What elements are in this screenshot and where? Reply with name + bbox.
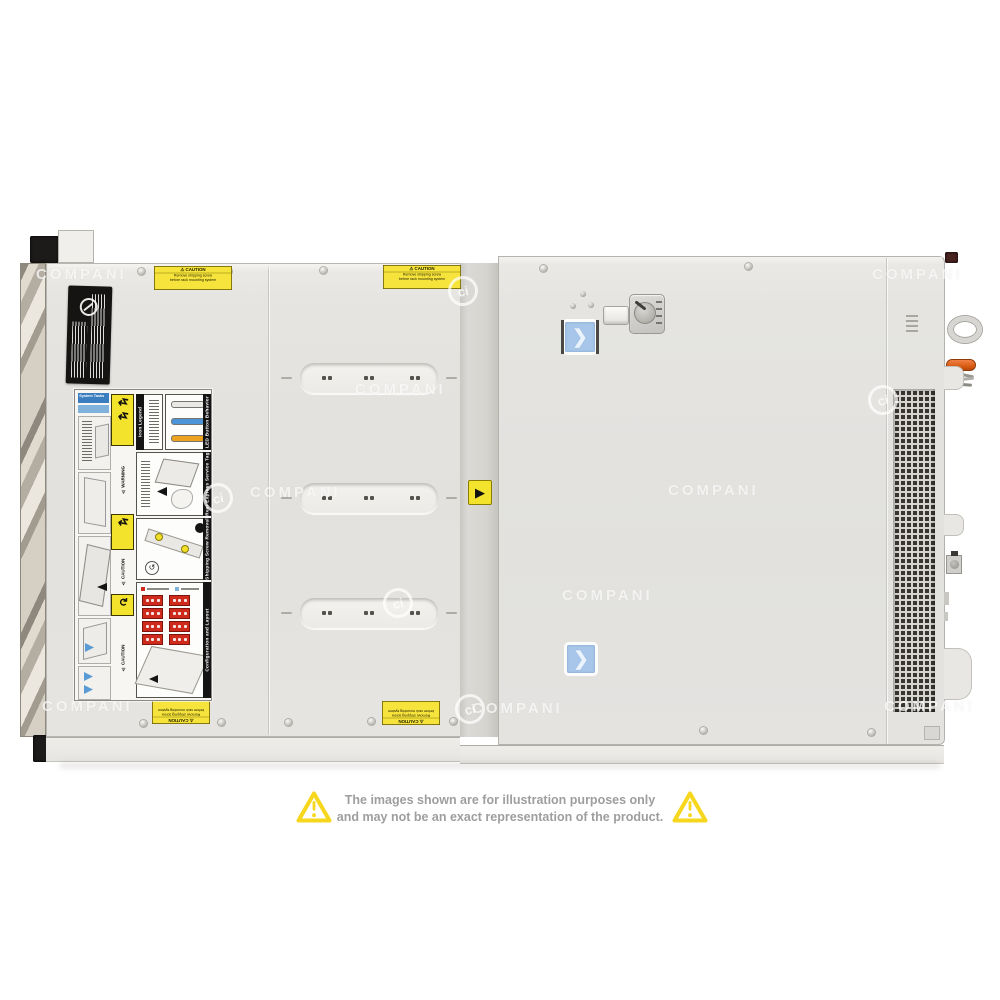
bottom-lip-rear bbox=[460, 745, 944, 764]
task-diagram bbox=[78, 666, 111, 700]
psu-handle-ring bbox=[948, 316, 982, 343]
etched-dash bbox=[446, 497, 457, 499]
warning-triangle-icon bbox=[672, 790, 708, 824]
drive-bay-cell bbox=[142, 634, 163, 645]
drive-dot bbox=[184, 638, 187, 641]
rivet bbox=[588, 302, 594, 308]
screw bbox=[540, 265, 547, 272]
drive-dot bbox=[173, 599, 176, 602]
config-layout-header: Configuration and Layout bbox=[203, 582, 211, 698]
slot-vent-dot bbox=[410, 496, 414, 500]
drive-dot bbox=[178, 638, 181, 641]
slot-vent-dot bbox=[416, 376, 420, 380]
regulatory-label bbox=[66, 285, 113, 384]
drive-dot bbox=[157, 638, 160, 641]
lift-warning-icon-box: ↯ ↯ bbox=[111, 394, 134, 446]
rear-tab bbox=[944, 612, 948, 621]
drive-dot bbox=[151, 612, 154, 615]
etched-dash bbox=[446, 377, 457, 379]
screw bbox=[138, 268, 145, 275]
etched-dash bbox=[446, 612, 457, 614]
cover-edge-bulge bbox=[944, 648, 972, 700]
slot-vent-dot bbox=[410, 611, 414, 615]
cover-keylock bbox=[629, 294, 665, 334]
bottom-lip-front bbox=[46, 737, 460, 762]
screw bbox=[745, 263, 752, 270]
slot-vent-dot bbox=[364, 496, 368, 500]
led-behavior-header: LED Button Behavior bbox=[203, 394, 211, 450]
screw bbox=[868, 729, 875, 736]
caution-line: before rack mounting system bbox=[383, 709, 439, 713]
task-diagram bbox=[78, 536, 111, 616]
drive-dot bbox=[151, 625, 154, 628]
led-bar bbox=[171, 401, 205, 408]
slot-vent-dot bbox=[416, 496, 420, 500]
slot-vent-dot bbox=[328, 611, 332, 615]
shipping-screw-header: Shipping Screw Removal bbox=[203, 518, 211, 580]
drive-dot bbox=[146, 638, 149, 641]
chevron-right-icon: ❯ bbox=[573, 648, 589, 671]
rack-ear-top-left bbox=[30, 236, 59, 263]
rear-tab bbox=[944, 592, 949, 605]
caution-line: before rack mounting system bbox=[153, 708, 209, 712]
drive-dot bbox=[146, 612, 149, 615]
drive-dot bbox=[146, 599, 149, 602]
config-layout-panel bbox=[136, 582, 211, 698]
slot-vent-dot bbox=[364, 611, 368, 615]
service-chip-system-tasks: System Tasks bbox=[78, 393, 109, 403]
cover-seam bbox=[268, 265, 269, 735]
rear-corner-piece bbox=[945, 252, 958, 263]
drive-dot bbox=[173, 638, 176, 641]
drive-dot bbox=[178, 625, 181, 628]
screw bbox=[450, 718, 457, 725]
drive-dot bbox=[184, 612, 187, 615]
etched-dash bbox=[281, 612, 292, 614]
server-front-edge-drive-latches bbox=[20, 263, 46, 737]
led-bar bbox=[171, 418, 205, 425]
drive-dot bbox=[157, 599, 160, 602]
task-diagram bbox=[78, 618, 111, 664]
rear-vent-perforation bbox=[893, 389, 935, 712]
drive-bay-cell bbox=[169, 608, 190, 619]
drive-dot bbox=[173, 612, 176, 615]
etched-dash bbox=[281, 497, 292, 499]
cover-release-slider bbox=[603, 306, 629, 325]
drive-dot bbox=[178, 612, 181, 615]
rivet bbox=[570, 303, 576, 309]
cover-top-highlight-rear bbox=[499, 257, 942, 265]
front-top-protrusion bbox=[58, 230, 94, 263]
slot-vent-dot bbox=[322, 611, 326, 615]
service-instruction-label: System Tasks bbox=[74, 389, 212, 701]
vent-panel-seam bbox=[886, 258, 887, 744]
regulatory-microtext bbox=[90, 294, 106, 378]
lock-unlock-icons bbox=[656, 301, 662, 325]
caution-text-panel: ⚠ CAUTION bbox=[111, 618, 134, 698]
drive-bay-cell bbox=[142, 621, 163, 632]
drive-dot bbox=[173, 625, 176, 628]
screw bbox=[140, 720, 147, 727]
drop-shadow bbox=[60, 763, 940, 768]
drive-bay-cell bbox=[142, 595, 163, 606]
cover-recess-slot bbox=[300, 598, 438, 629]
drive-dot bbox=[184, 599, 187, 602]
embossed-marks bbox=[906, 315, 918, 333]
rear-thumbscrew bbox=[946, 555, 962, 574]
drive-dot bbox=[184, 625, 187, 628]
caution-line: Remove shipping screw bbox=[383, 713, 439, 717]
slot-vent-dot bbox=[370, 611, 374, 615]
drive-bay-cell bbox=[169, 595, 190, 606]
drive-dot bbox=[178, 599, 181, 602]
task-diagram bbox=[78, 472, 111, 534]
slot-vent-dot bbox=[410, 376, 414, 380]
drive-bay-cell bbox=[169, 621, 190, 632]
drive-bay-cell bbox=[169, 634, 190, 645]
cycle-icon-box: ↻ bbox=[111, 594, 134, 616]
drive-dot bbox=[157, 612, 160, 615]
disclaimer-line-1: The images shown are for illustration pu… bbox=[320, 792, 680, 809]
service-chip-secondary bbox=[78, 405, 109, 413]
caution-text-panel: ⚠ CAUTION bbox=[111, 552, 134, 592]
slot-vent-dot bbox=[322, 496, 326, 500]
screw bbox=[285, 719, 292, 726]
product-photo-canvas: ⚠ CAUTION Remove shipping screw before r… bbox=[0, 0, 1000, 1000]
caution-label-top-left: ⚠ CAUTION Remove shipping screw before r… bbox=[154, 266, 232, 290]
caution-title: ⚠ CAUTION bbox=[153, 717, 209, 723]
cover-edge-notch bbox=[944, 514, 964, 536]
caution-line: before rack mounting system bbox=[155, 278, 231, 282]
slot-vent-dot bbox=[370, 496, 374, 500]
service-tag-header: Rear Express Service Tag bbox=[203, 452, 211, 516]
cover-latch-button-top: ❯ bbox=[565, 322, 595, 352]
drive-bay-cell bbox=[142, 608, 163, 619]
screw bbox=[320, 267, 327, 274]
rivet bbox=[580, 291, 586, 297]
chevron-right-icon: ❯ bbox=[572, 326, 588, 349]
cover-edge-notch bbox=[944, 366, 964, 390]
warning-triangle-glyph: ▶ bbox=[475, 485, 485, 501]
lift-warning-icon-box: ↯ bbox=[111, 514, 134, 550]
drive-dot bbox=[151, 599, 154, 602]
slot-vent-dot bbox=[328, 496, 332, 500]
caution-title: ⚠ CAUTION bbox=[383, 718, 439, 724]
regulatory-microtext bbox=[71, 322, 88, 378]
disclaimer-line-2: and may not be an exact representation o… bbox=[320, 809, 680, 826]
caution-line: before rack mounting system bbox=[384, 277, 460, 281]
cover-latch-button-bottom: ❯ bbox=[567, 645, 595, 673]
slot-vent-dot bbox=[364, 376, 368, 380]
warning-text-panel: ⚠ WARNING bbox=[111, 448, 134, 512]
task-diagram bbox=[78, 416, 111, 470]
service-tag-panel bbox=[136, 452, 211, 516]
caution-label-bottom-left: ⚠ CAUTION Remove shipping screw before r… bbox=[152, 700, 210, 724]
rear-foot bbox=[924, 726, 940, 740]
screw bbox=[218, 719, 225, 726]
screw bbox=[700, 727, 707, 734]
drive-bay-diagram-front bbox=[142, 595, 163, 647]
caution-line: Remove shipping screw bbox=[153, 712, 209, 716]
drive-bay-diagram-mid bbox=[169, 595, 190, 647]
led-bar bbox=[171, 435, 205, 442]
disclaimer-text: The images shown are for illustration pu… bbox=[320, 792, 680, 826]
cover-recess-slot bbox=[300, 483, 438, 514]
drive-dot bbox=[151, 638, 154, 641]
drive-dot bbox=[157, 625, 160, 628]
screw bbox=[368, 718, 375, 725]
shipping-screw-panel: ↺ bbox=[136, 518, 211, 580]
caution-label-top-right: ⚠ CAUTION Remove shipping screw before r… bbox=[383, 265, 461, 289]
divider-warning-label: ▶ bbox=[468, 480, 492, 505]
slot-vent-dot bbox=[322, 376, 326, 380]
chip-text: System Tasks bbox=[78, 393, 91, 398]
cover-recess-slot bbox=[300, 363, 438, 394]
slot-vent-dot bbox=[416, 611, 420, 615]
slot-vent-dot bbox=[370, 376, 374, 380]
icon-legend-header: Icon Legend bbox=[136, 394, 144, 450]
drive-dot bbox=[146, 625, 149, 628]
slot-vent-dot bbox=[328, 376, 332, 380]
caution-label-bottom-right: ⚠ CAUTION Remove shipping screw before r… bbox=[382, 701, 440, 725]
etched-dash bbox=[281, 377, 292, 379]
